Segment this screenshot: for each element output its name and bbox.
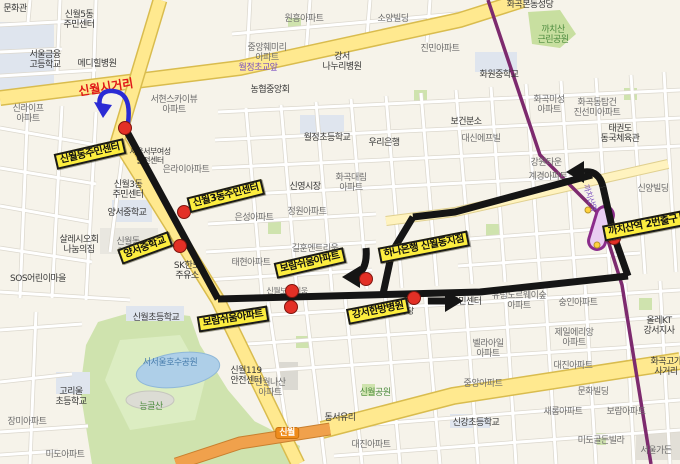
bus-stop-marker <box>608 232 621 245</box>
turn-down-arrowhead-icon <box>342 266 360 288</box>
bus-stop-marker <box>360 273 373 286</box>
bus-stop-marker <box>174 240 187 253</box>
bus-stop-marker <box>285 301 298 314</box>
route-path <box>413 175 592 217</box>
bus-stop-marker <box>408 292 421 305</box>
route-path <box>218 276 628 299</box>
u-turn-arrowhead-icon <box>94 102 112 118</box>
map-canvas: 문화관신월5동 주민센터서울금융 고등학교메디힐병원신라이프 아파트서현스카이뷰… <box>0 0 680 464</box>
bus-stop-marker <box>178 206 191 219</box>
bus-stop-marker <box>119 122 132 135</box>
bus-stop-marker <box>286 285 299 298</box>
route-path <box>383 217 413 294</box>
route-overlay-svg <box>0 0 680 464</box>
route-path <box>125 128 218 299</box>
